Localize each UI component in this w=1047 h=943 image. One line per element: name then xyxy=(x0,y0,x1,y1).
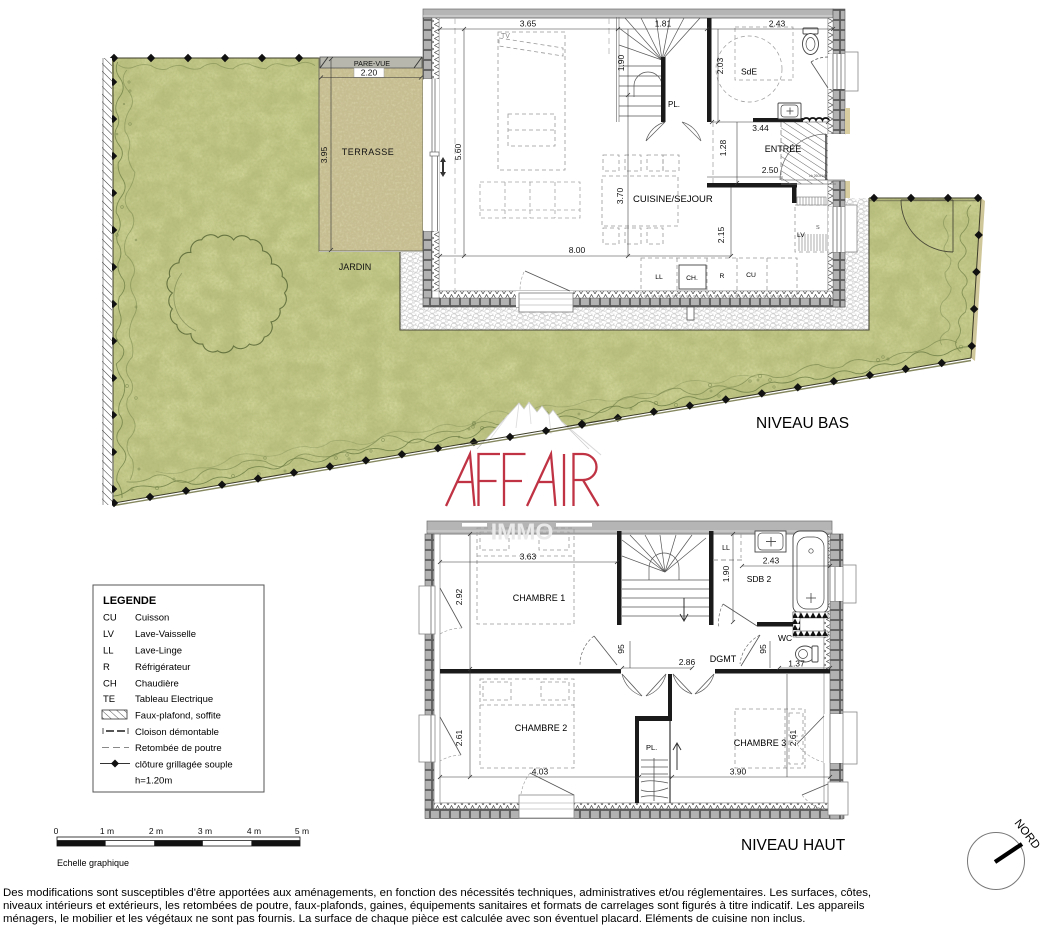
svg-text:1 m: 1 m xyxy=(100,826,114,836)
svg-text:niveaux intérieurs et extérieu: niveaux intérieurs et extérieurs, les re… xyxy=(3,900,865,912)
svg-text:2.20: 2.20 xyxy=(361,68,378,78)
svg-text:LL: LL xyxy=(655,274,663,281)
svg-text:ch 260x140: ch 260x140 xyxy=(809,174,827,178)
svg-text:JARDIN: JARDIN xyxy=(339,262,372,272)
svg-text:Cloison démontable: Cloison démontable xyxy=(135,727,219,738)
svg-text:2.86: 2.86 xyxy=(679,657,696,667)
svg-text:4 m: 4 m xyxy=(247,826,261,836)
svg-text:CHAMBRE 2: CHAMBRE 2 xyxy=(515,723,568,733)
svg-text:Tableau Electrique: Tableau Electrique xyxy=(135,694,213,705)
svg-text:5 m: 5 m xyxy=(295,826,309,836)
svg-text:DGMT: DGMT xyxy=(710,654,737,664)
svg-text:3.65: 3.65 xyxy=(520,19,537,29)
svg-text:CHAMBRE 3: CHAMBRE 3 xyxy=(734,738,787,748)
svg-text:1.90: 1.90 xyxy=(721,565,731,582)
svg-text:5.60: 5.60 xyxy=(453,143,463,160)
svg-text:CUISINE/SEJOUR: CUISINE/SEJOUR xyxy=(633,194,713,205)
svg-text:Chaudière: Chaudière xyxy=(135,679,179,690)
svg-text:Faux-plafond, soffite: Faux-plafond, soffite xyxy=(135,711,221,722)
svg-text:95: 95 xyxy=(616,644,626,654)
svg-text:ménagers, le mobilier et les v: ménagers, le mobilier et les végétaux ne… xyxy=(3,913,805,925)
svg-text:S: S xyxy=(816,225,820,231)
svg-text:LEGENDE: LEGENDE xyxy=(103,595,156,607)
svg-text:1.90: 1.90 xyxy=(616,54,626,71)
svg-text:CH: CH xyxy=(103,679,117,690)
svg-text:Des modifications sont suscept: Des modifications sont susceptibles d'êt… xyxy=(3,887,871,899)
svg-text:2.50: 2.50 xyxy=(762,165,779,175)
svg-text:2.61: 2.61 xyxy=(454,729,464,746)
svg-text:CHAMBRE 1: CHAMBRE 1 xyxy=(513,593,566,603)
svg-text:2.43: 2.43 xyxy=(769,19,786,29)
svg-text:NIVEAU HAUT: NIVEAU HAUT xyxy=(741,837,846,854)
svg-text:8.00: 8.00 xyxy=(569,245,586,255)
svg-text:LL: LL xyxy=(722,545,730,552)
svg-text:1.28: 1.28 xyxy=(718,139,728,156)
svg-text:3.70: 3.70 xyxy=(615,187,625,204)
svg-text:NIVEAU BAS: NIVEAU BAS xyxy=(756,415,849,432)
svg-text:CH.: CH. xyxy=(686,275,698,282)
svg-text:0: 0 xyxy=(54,826,59,836)
svg-text:PL.: PL. xyxy=(646,743,657,752)
svg-text:2.03: 2.03 xyxy=(715,57,725,74)
svg-text:3 m: 3 m xyxy=(198,826,212,836)
svg-text:TV: TV xyxy=(501,33,510,40)
svg-text:Lave-Vaisselle: Lave-Vaisselle xyxy=(135,629,196,640)
svg-text:Cuisson: Cuisson xyxy=(135,613,169,624)
svg-text:2.61: 2.61 xyxy=(788,729,798,746)
svg-text:3.63: 3.63 xyxy=(520,552,537,562)
svg-text:R: R xyxy=(103,662,110,673)
svg-text:Echelle graphique: Echelle graphique xyxy=(57,858,129,868)
svg-text:2.15: 2.15 xyxy=(716,226,726,243)
svg-text:LV: LV xyxy=(103,629,115,640)
svg-text:ENTRÉE: ENTRÉE xyxy=(765,144,802,154)
svg-text:h=1.20m: h=1.20m xyxy=(135,776,172,787)
svg-text:IMMO: IMMO xyxy=(491,519,554,545)
svg-text:2.92: 2.92 xyxy=(454,588,464,605)
svg-text:TERRASSE: TERRASSE xyxy=(342,147,395,157)
svg-text:LV: LV xyxy=(797,232,805,239)
svg-text:2 m: 2 m xyxy=(149,826,163,836)
svg-text:CU: CU xyxy=(746,272,756,279)
svg-text:LL: LL xyxy=(103,646,114,657)
svg-text:WC: WC xyxy=(778,633,792,643)
svg-text:3.95: 3.95 xyxy=(319,146,329,163)
svg-text:2.43: 2.43 xyxy=(763,556,780,566)
svg-text:Réfrigérateur: Réfrigérateur xyxy=(135,662,190,673)
svg-text:1.37: 1.37 xyxy=(788,659,805,669)
svg-text:4.03: 4.03 xyxy=(532,767,549,777)
svg-text:Lave-Linge: Lave-Linge xyxy=(135,646,182,657)
svg-text:3.90: 3.90 xyxy=(730,767,747,777)
svg-text:SdE: SdE xyxy=(741,67,757,77)
svg-text:Retombée de poutre: Retombée de poutre xyxy=(135,743,222,754)
svg-text:clôture grillagée souple: clôture grillagée souple xyxy=(135,760,233,771)
svg-text:SDB 2: SDB 2 xyxy=(747,574,772,584)
svg-text:1.81: 1.81 xyxy=(655,19,672,29)
svg-text:PL.: PL. xyxy=(668,100,680,109)
svg-text:CU: CU xyxy=(103,613,117,624)
svg-text:TE: TE xyxy=(103,694,115,705)
svg-text:95: 95 xyxy=(758,644,768,654)
svg-text:3.44: 3.44 xyxy=(752,123,769,133)
svg-text:R: R xyxy=(720,273,725,280)
